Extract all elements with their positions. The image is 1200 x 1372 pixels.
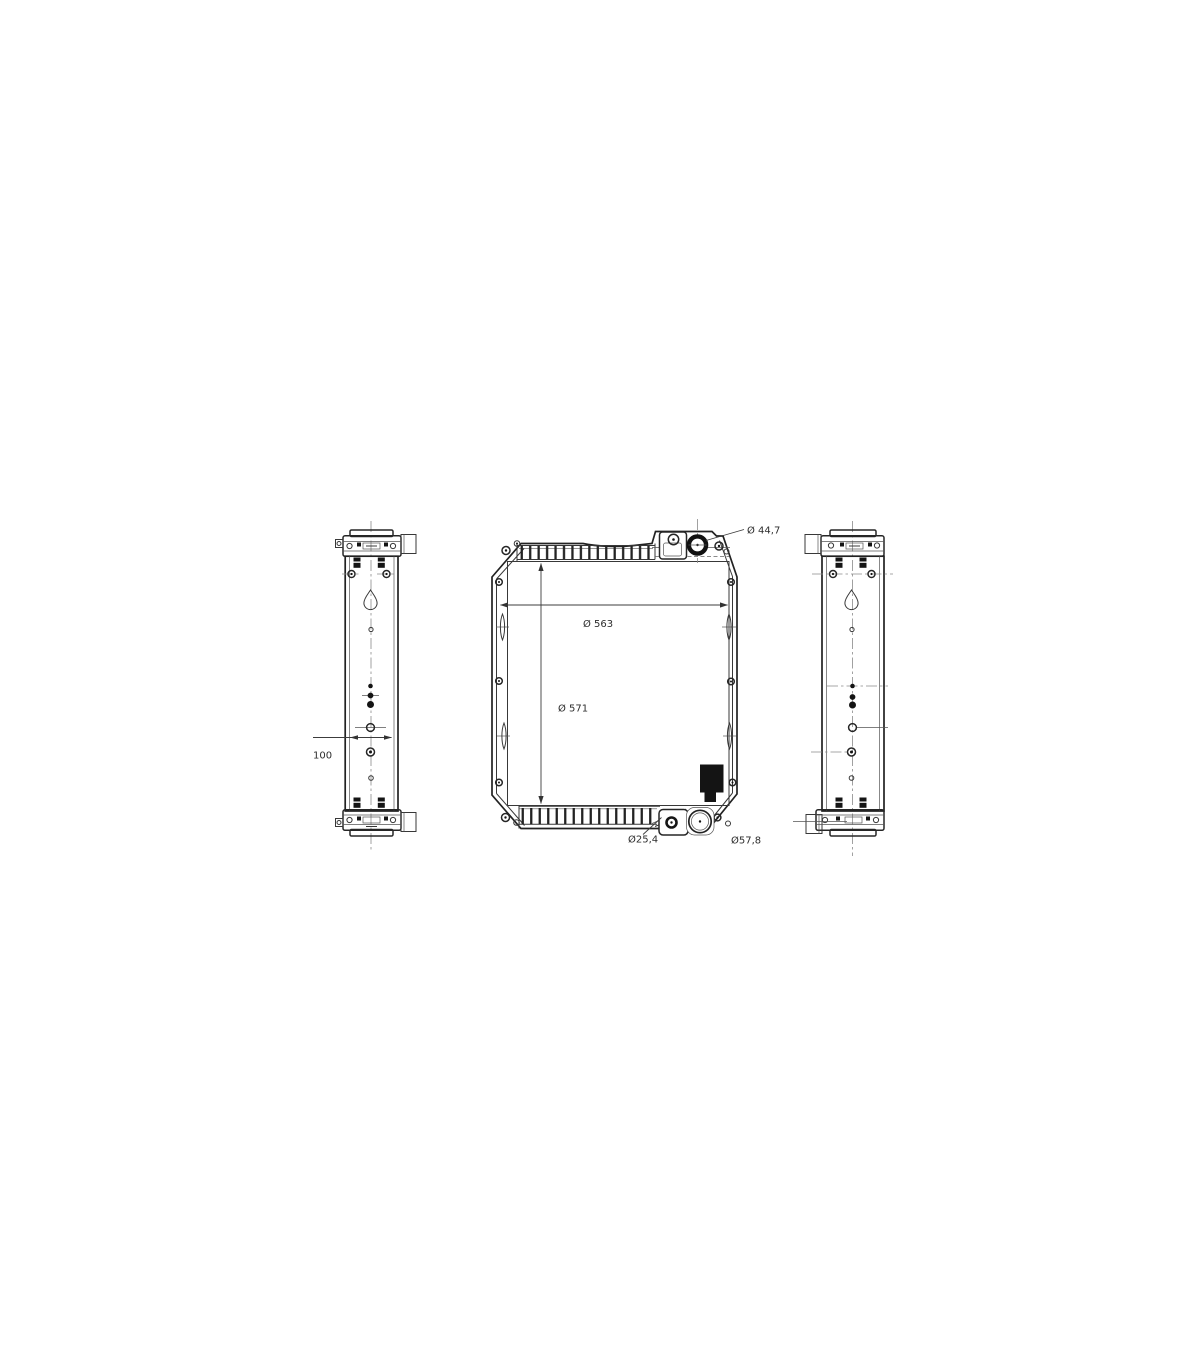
front-view [492,519,744,835]
left-view-top-bracket [336,530,417,556]
dim-label-44-7: Ø 44,7 [747,525,780,537]
small-hole [850,627,854,631]
right-view-bottom-bracket [793,810,884,836]
left-view-body [345,556,398,811]
dimension-100 [313,735,392,740]
top-fins [519,546,654,560]
right-view-top-bracket [805,530,884,556]
side-rail-holes [496,579,737,786]
drawing-canvas: Ø 44,7 Ø 563 Ø 571 Ø25,4 Ø57,8 100 [0,0,1200,1372]
dim-label-571: Ø 571 [558,703,588,715]
bottom-fins [520,808,656,824]
dim-label-563: Ø 563 [583,618,613,630]
mount-slots-top [836,558,867,568]
mount-slots-bottom [354,798,385,808]
teardrop-hole [845,590,858,610]
left-side-view [313,521,416,850]
corner-bolts [502,541,731,826]
dim-label-100: 100 [313,751,332,762]
mount-slots-bottom [836,798,867,808]
pin-holes-top [342,571,396,578]
dimension-571 [538,563,543,804]
mount-slots-top [354,558,385,568]
frame-inner-lines [497,541,733,826]
drain-plug-black [700,765,724,803]
radiator-drawing: Ø 44,7 Ø 563 Ø 571 Ø25,4 Ø57,8 100 [0,0,1200,1372]
dimension-563 [500,602,728,607]
right-view-body [822,556,884,811]
right-side-view [793,521,893,856]
left-view-bottom-bracket [336,810,417,836]
dim-label-57-8: Ø57,8 [731,835,761,847]
dim-label-25-4: Ø25,4 [628,834,658,846]
teardrop-hole [364,590,377,610]
bolt-row [355,684,386,781]
